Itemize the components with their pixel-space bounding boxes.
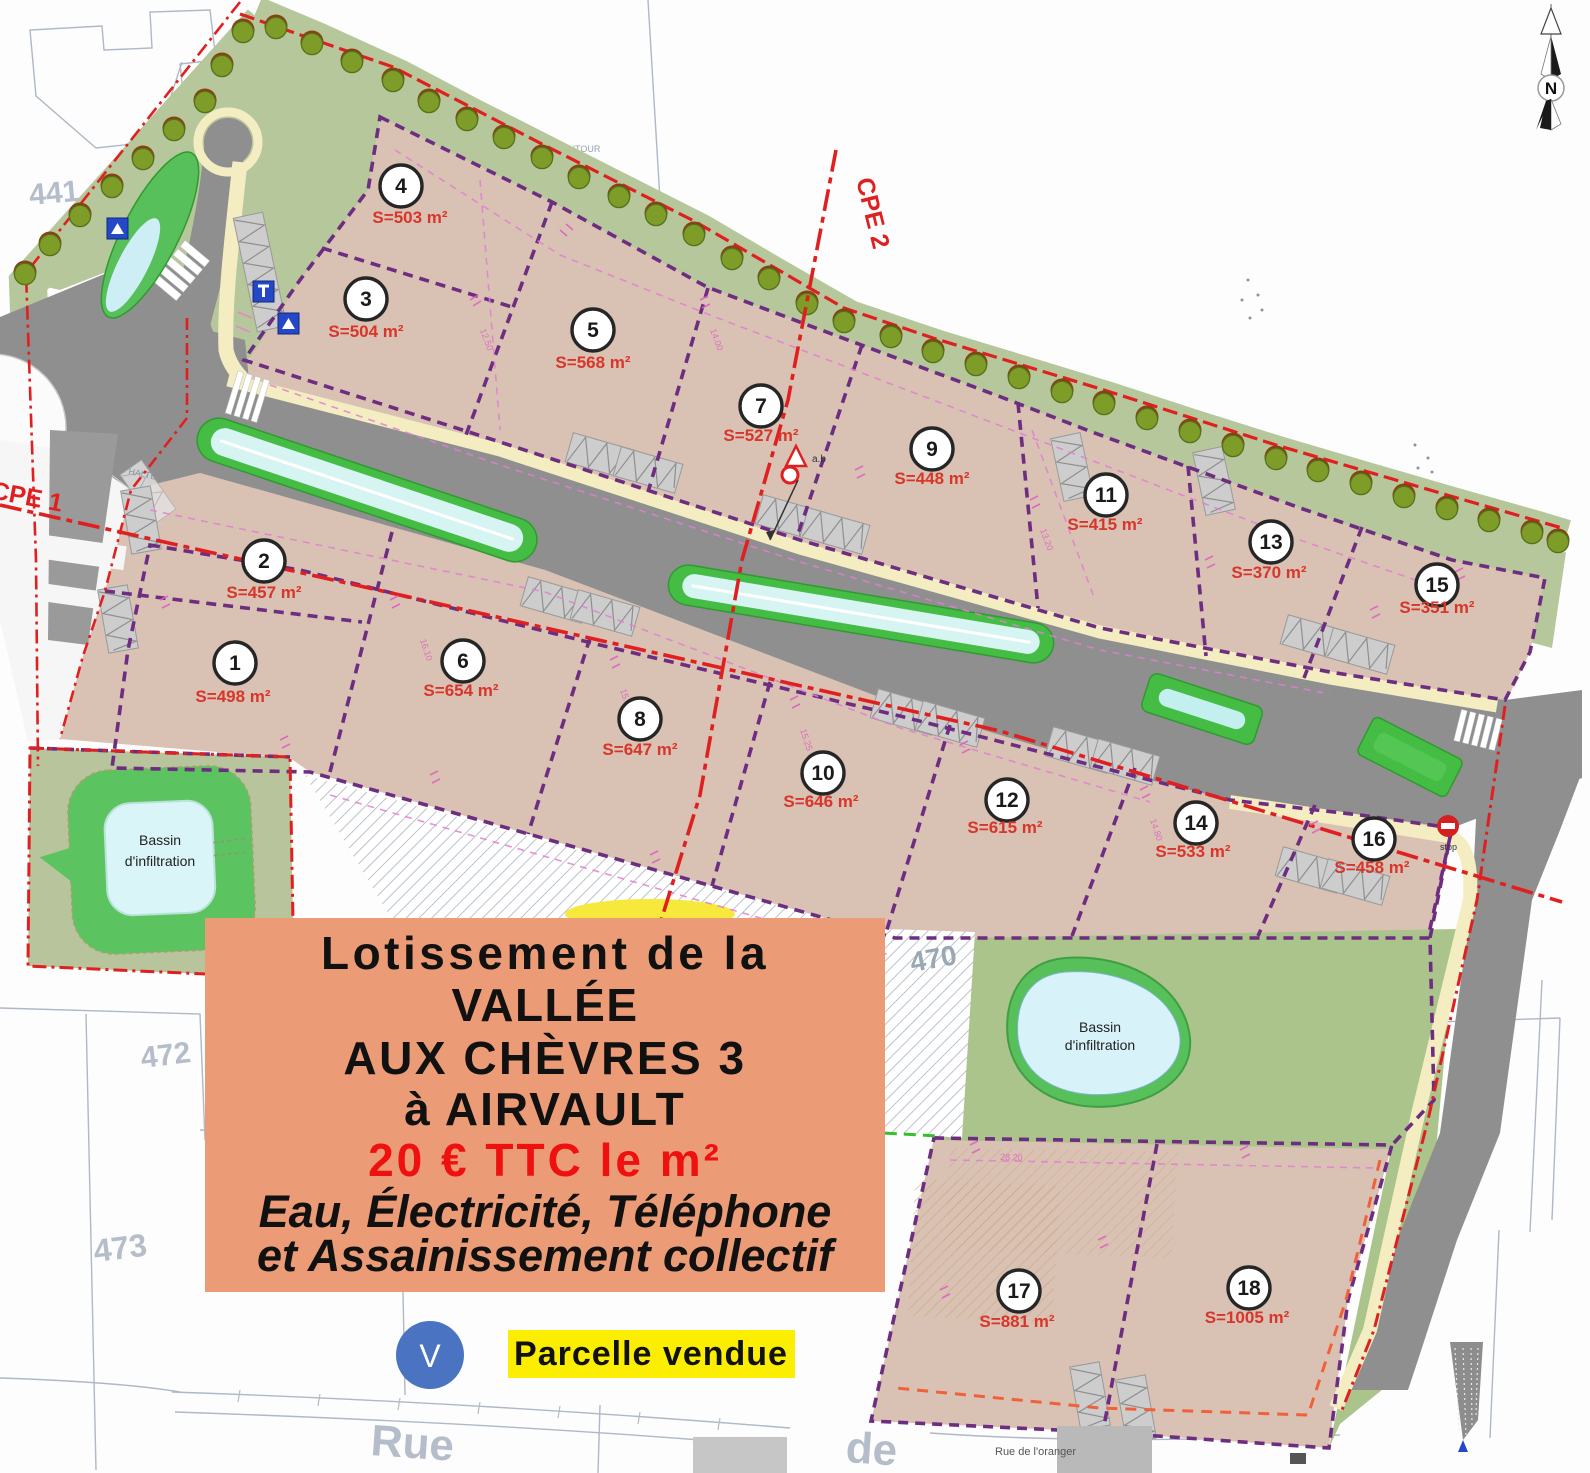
svg-text:S=457 m²: S=457 m² <box>226 583 301 602</box>
svg-text:16: 16 <box>1362 828 1385 851</box>
svg-text:1: 1 <box>229 652 241 675</box>
svg-text:Rue de l'oranger: Rue de l'oranger <box>995 1446 1076 1458</box>
svg-text:15: 15 <box>1425 574 1449 597</box>
svg-text:Rue: Rue <box>369 1416 455 1471</box>
svg-text:473: 473 <box>91 1227 148 1269</box>
svg-text:stop: stop <box>1440 842 1457 852</box>
svg-text:10: 10 <box>811 762 834 785</box>
svg-text:S=1005 m²: S=1005 m² <box>1205 1308 1290 1327</box>
svg-text:12: 12 <box>995 789 1018 812</box>
svg-text:18: 18 <box>1237 1277 1261 1300</box>
svg-text:S=498 m²: S=498 m² <box>195 687 270 706</box>
svg-text:de: de <box>844 1423 899 1473</box>
svg-text:et Assainissement collectif: et Assainissement collectif <box>257 1230 837 1281</box>
svg-text:N: N <box>1545 79 1557 98</box>
svg-text:S=568 m²: S=568 m² <box>555 353 630 372</box>
svg-text:14: 14 <box>1184 812 1208 835</box>
svg-text:a.b: a.b <box>812 454 826 465</box>
svg-text:S=881 m²: S=881 m² <box>979 1312 1054 1331</box>
svg-text:3: 3 <box>360 288 372 311</box>
svg-text:S=533 m²: S=533 m² <box>1155 842 1230 861</box>
svg-text:4: 4 <box>395 175 407 198</box>
svg-text:Bassin: Bassin <box>1079 1019 1121 1035</box>
svg-text:S=527 m²: S=527 m² <box>723 426 798 445</box>
svg-text:VALLÉE: VALLÉE <box>451 979 638 1031</box>
svg-text:AUX CHÈVRES 3: AUX CHÈVRES 3 <box>343 1032 746 1084</box>
svg-text:V: V <box>419 1338 441 1374</box>
svg-text:17: 17 <box>1007 1280 1030 1303</box>
svg-text:Bassin: Bassin <box>139 832 181 848</box>
svg-text:S=647 m²: S=647 m² <box>602 740 677 759</box>
svg-text:S=415 m²: S=415 m² <box>1067 515 1142 534</box>
svg-text:Parcelle vendue: Parcelle vendue <box>514 1335 788 1373</box>
svg-text:à AIRVAULT: à AIRVAULT <box>404 1083 686 1135</box>
svg-text:S=458 m²: S=458 m² <box>1334 858 1409 877</box>
svg-text:S=646 m²: S=646 m² <box>783 792 858 811</box>
svg-text:S=448 m²: S=448 m² <box>894 469 969 488</box>
svg-text:S=503 m²: S=503 m² <box>372 208 447 227</box>
svg-text:d'infiltration: d'infiltration <box>125 853 195 869</box>
svg-text:472: 472 <box>139 1036 193 1075</box>
svg-text:d'infiltration: d'infiltration <box>1065 1037 1135 1053</box>
svg-text:S=351 m²: S=351 m² <box>1399 598 1474 617</box>
svg-text:9: 9 <box>926 438 938 461</box>
svg-text:5: 5 <box>587 319 599 342</box>
svg-text:S=504 m²: S=504 m² <box>328 322 403 341</box>
svg-text:11: 11 <box>1095 484 1118 507</box>
svg-text:2: 2 <box>258 550 270 573</box>
svg-text:13: 13 <box>1259 531 1282 554</box>
svg-text:6: 6 <box>457 650 469 673</box>
svg-text:28.20: 28.20 <box>1000 1152 1023 1163</box>
svg-text:20 € TTC le m²: 20 € TTC le m² <box>368 1134 722 1186</box>
svg-text:Lotissement de la: Lotissement de la <box>321 927 769 979</box>
svg-text:S=370 m²: S=370 m² <box>1231 563 1306 582</box>
svg-text:S=615 m²: S=615 m² <box>967 818 1042 837</box>
svg-text:8: 8 <box>634 708 646 731</box>
svg-text:S=654 m²: S=654 m² <box>423 681 498 700</box>
svg-text:7: 7 <box>755 395 767 418</box>
